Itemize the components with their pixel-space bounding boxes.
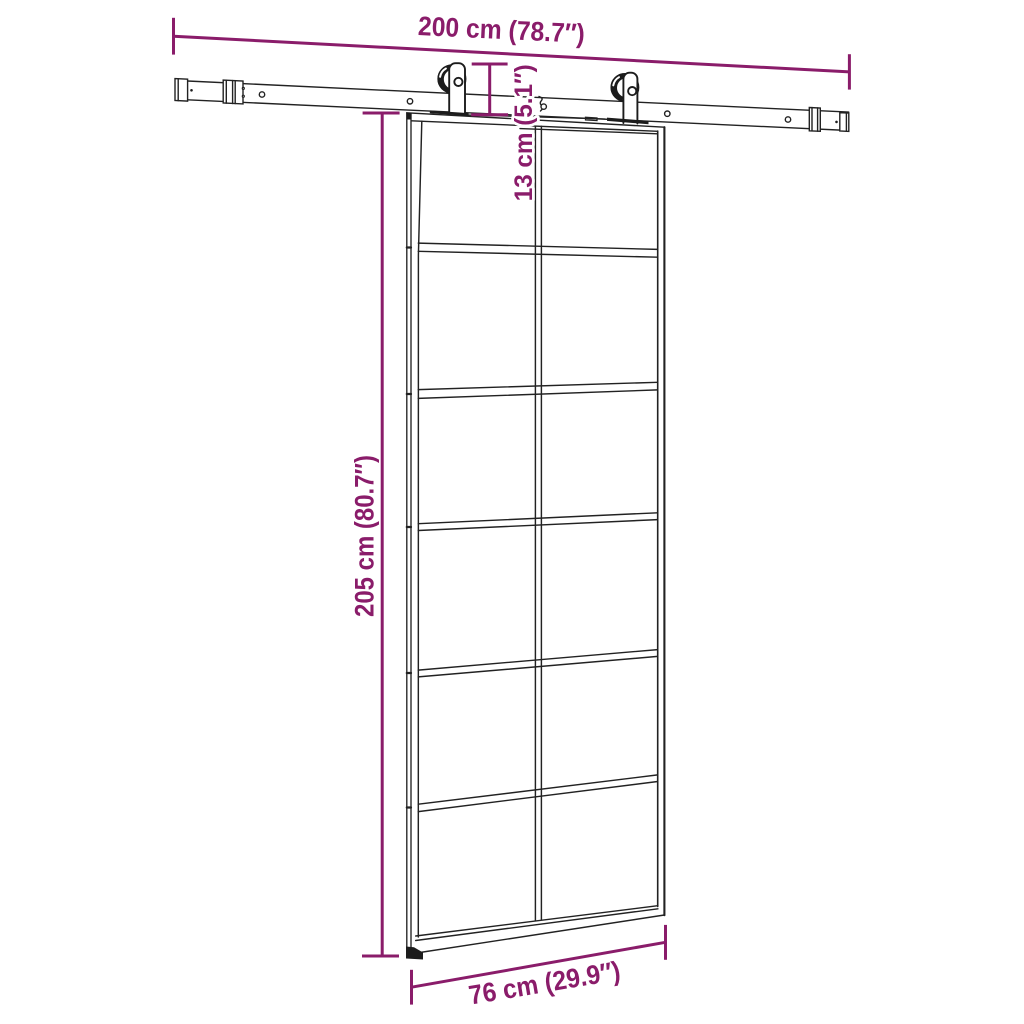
svg-text:13 cm (5.1″): 13 cm (5.1″) [510, 64, 538, 201]
svg-text:205 cm (80.7″): 205 cm (80.7″) [349, 455, 379, 617]
